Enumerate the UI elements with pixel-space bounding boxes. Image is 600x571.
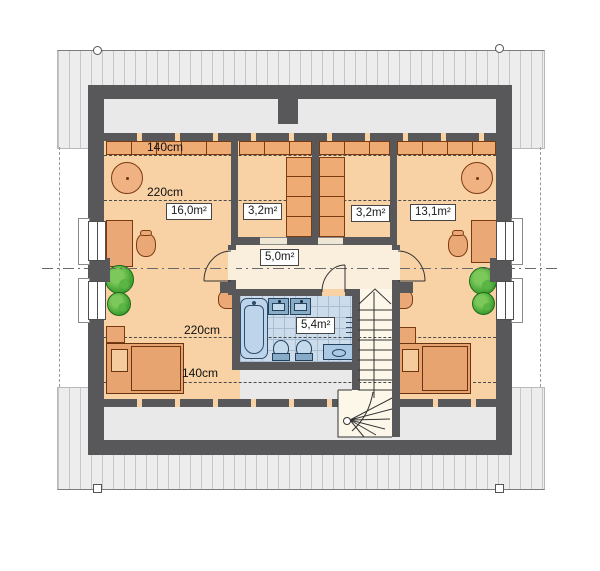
bathtub [240, 298, 268, 359]
window-left-2 [88, 281, 106, 320]
bidet-tank [295, 353, 313, 361]
bidet [295, 340, 312, 361]
wardrobe-row-right-bedroom [397, 141, 496, 155]
office-chair-left [136, 233, 156, 257]
height-line-140-top [104, 155, 496, 156]
toilet [272, 340, 289, 361]
pillow-left [111, 349, 128, 372]
dim-label-140-bottom: 140cm [182, 367, 218, 380]
center-axis-line [42, 268, 558, 269]
sink-1 [268, 298, 289, 315]
closet-right-door [318, 237, 343, 245]
wall-between-closets [312, 133, 319, 245]
round-table-right [461, 162, 493, 194]
roof-eave-line-left [59, 147, 60, 387]
office-chair-right [448, 233, 468, 257]
bathroom-bottom-wall [232, 362, 360, 370]
bathroom-top-wall-left [236, 289, 322, 296]
area-label-bedroom-left: 16,0m² [166, 203, 212, 220]
under-bath-void [240, 370, 352, 399]
round-table-left [111, 162, 143, 194]
closet-left-door [260, 237, 287, 245]
wall-closet-right-room [390, 133, 397, 245]
plant-left-2 [107, 292, 131, 316]
pier-exterior-right [490, 258, 512, 282]
wall-left-room-closet [231, 133, 238, 245]
shelf-column-closet-right [319, 157, 345, 237]
knee-wall-bottom-left [104, 399, 338, 407]
area-label-closet-left: 3,2m² [243, 203, 282, 220]
area-label-closet-right: 3,2m² [351, 205, 390, 222]
pier-exterior-left [88, 258, 110, 282]
roof-marker-square-right [495, 484, 504, 493]
sink-2 [290, 298, 311, 315]
washbasin-counter [323, 344, 353, 360]
hallway-right-door-opening [392, 250, 400, 280]
height-line-220-bottom [104, 337, 496, 338]
stair-winder-floor [338, 390, 392, 437]
roof-marker-circle-left [93, 46, 102, 55]
bathroom-left-wall [232, 289, 240, 370]
shelf-row-closet-left [239, 141, 312, 155]
dim-label-140-top: 140cm [147, 141, 183, 154]
nightstand-left [106, 326, 125, 343]
desk-left [106, 220, 133, 267]
chimney [278, 96, 298, 124]
roof-eave-line-right [540, 147, 541, 387]
stairwell-floor [358, 289, 392, 400]
plant-right-2 [472, 292, 495, 315]
shelf-row-closet-right [319, 141, 390, 155]
shelf-column-closet-left [286, 157, 312, 237]
knee-wall-bottom-right [400, 399, 496, 407]
window-right-1 [496, 221, 514, 261]
window-right-2 [496, 281, 514, 320]
dim-label-220-top: 220cm [147, 186, 183, 199]
area-label-bedroom-right: 13,1m² [410, 204, 456, 221]
pillow-right [402, 349, 419, 372]
roof-marker-circle-right [495, 44, 504, 53]
area-label-hallway: 5,0m² [260, 249, 299, 266]
pier-right-room [397, 282, 413, 293]
wall-closets-hallway [231, 237, 397, 245]
floor-plan: 16,0m² 3,2m² 3,2m² 13,1m² 5,0m² 5,4m² 14… [0, 0, 600, 571]
bathroom-right-wall [352, 289, 360, 390]
desk-right [471, 220, 497, 263]
area-label-bathroom: 5,4m² [296, 317, 335, 334]
dim-label-220-bottom: 220cm [184, 324, 220, 337]
roof-marker-square-left [93, 484, 102, 493]
toilet-tank [272, 353, 290, 361]
window-left-1 [88, 221, 106, 261]
hallway-left-door-opening [228, 250, 236, 280]
